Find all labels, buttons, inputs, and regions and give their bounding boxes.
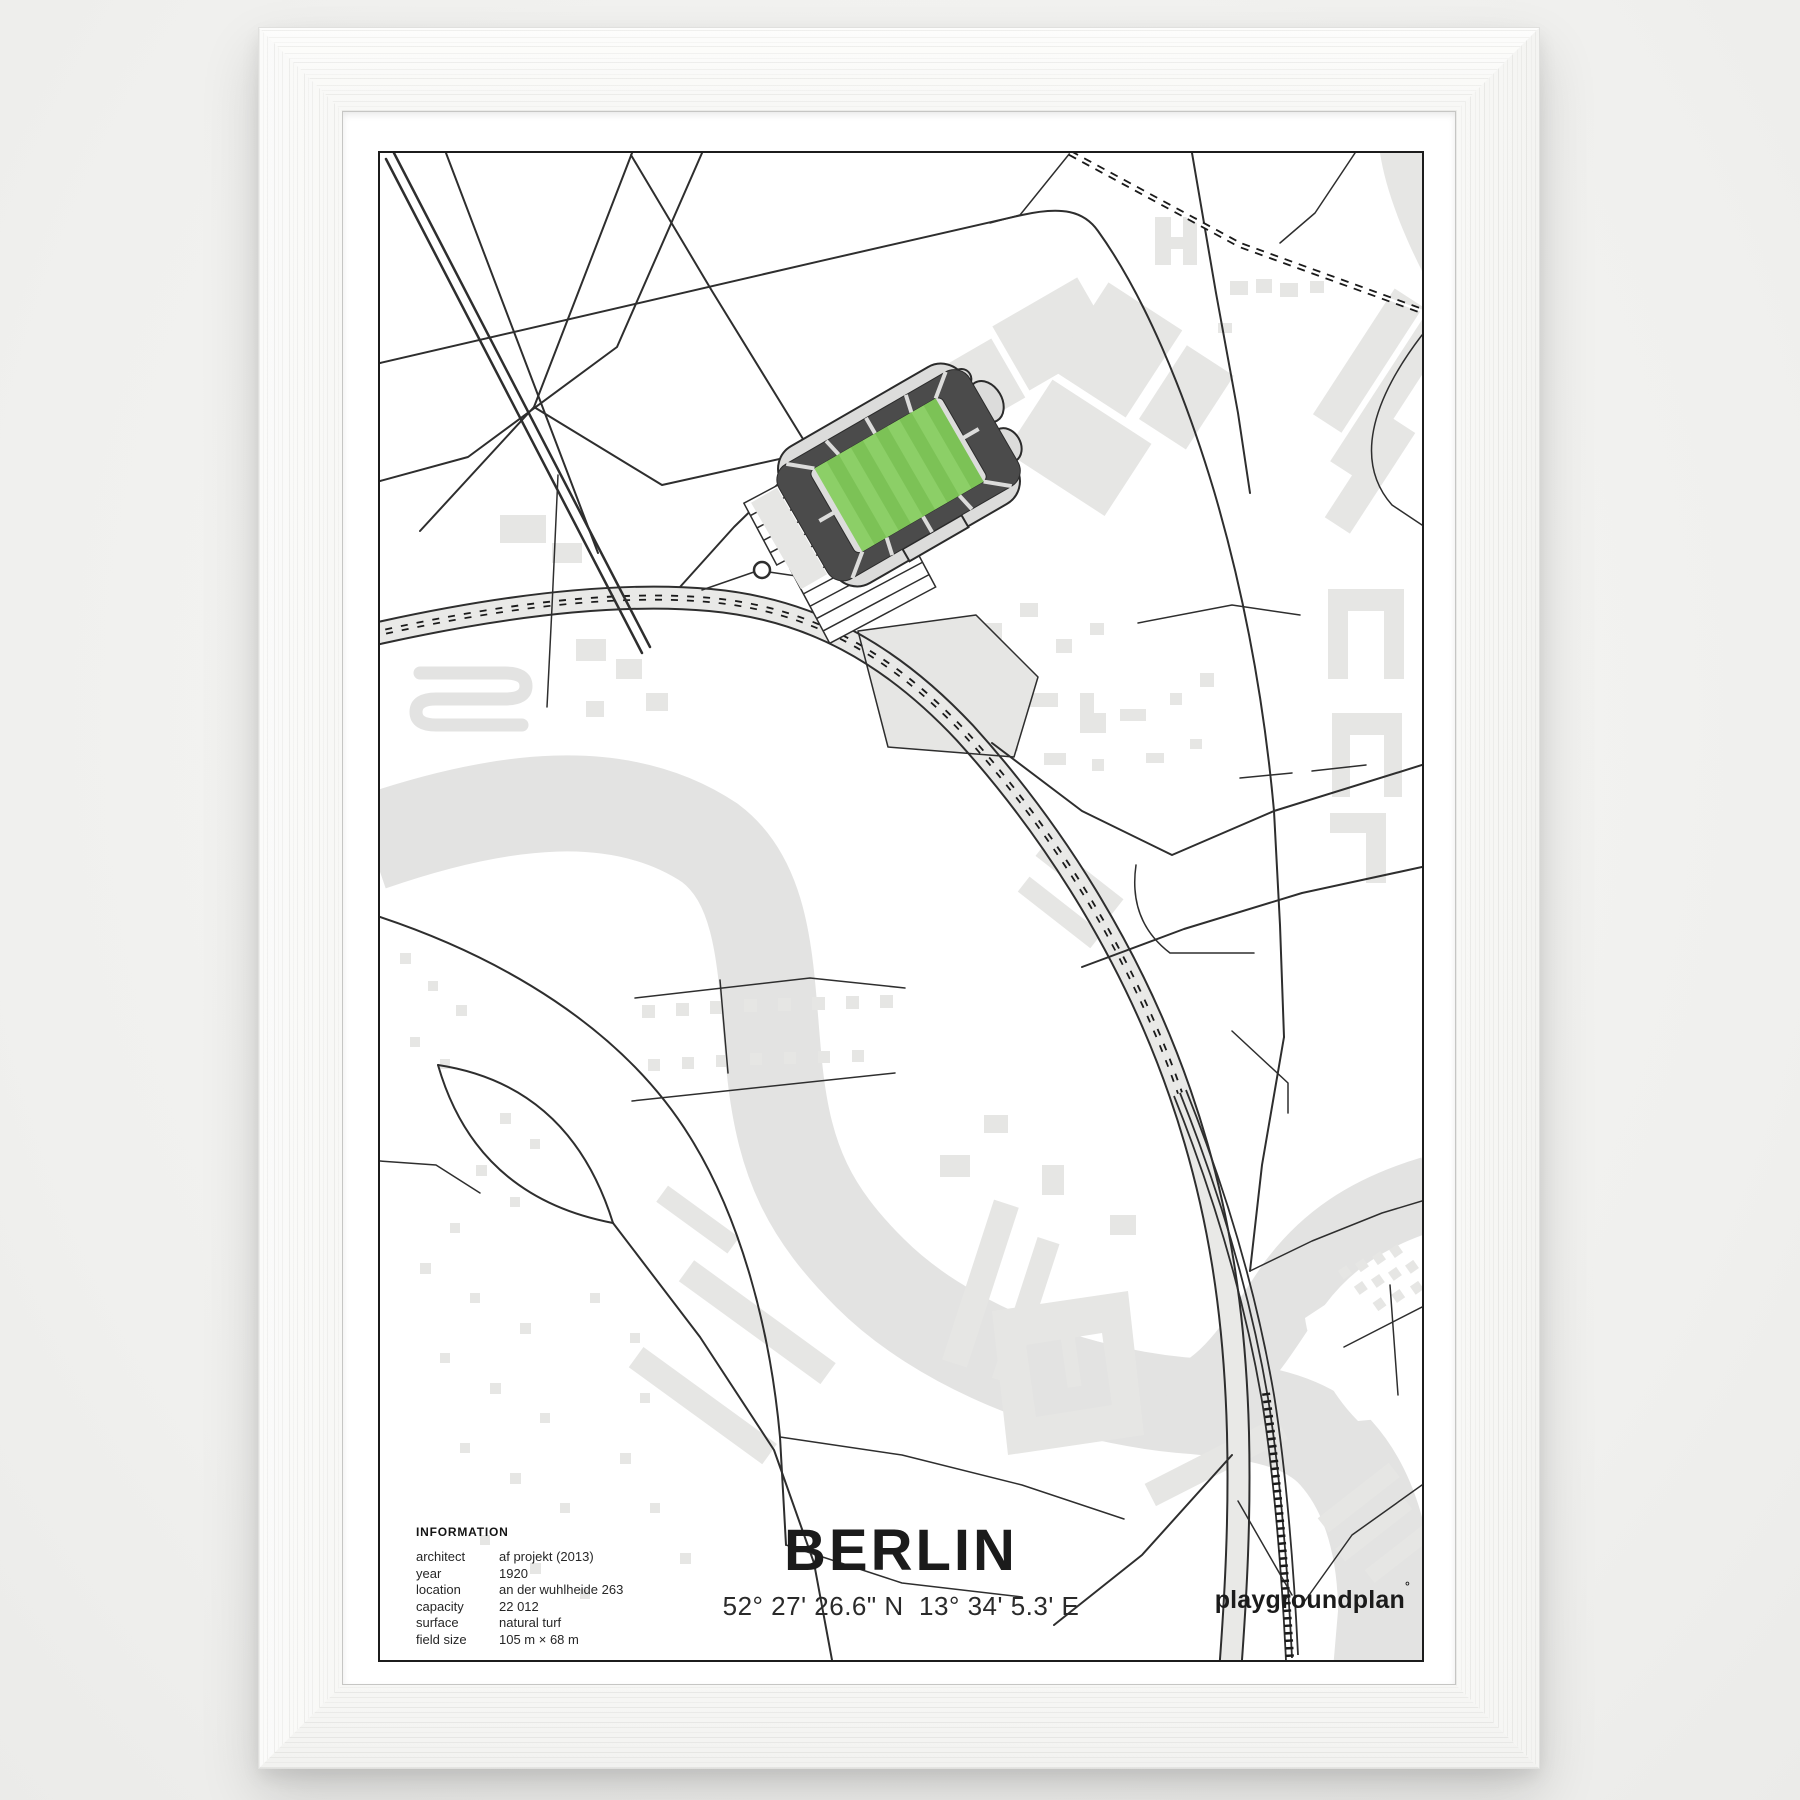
frame-left-molding: [259, 28, 342, 1768]
poster-title: BERLIN: [380, 1517, 1422, 1584]
frame-top-molding: [259, 28, 1539, 111]
information-row: field size105 m × 68 m: [416, 1632, 623, 1649]
information-value: 105 m × 68 m: [499, 1632, 623, 1649]
brand-logo: playgroundplan°: [1215, 1586, 1410, 1615]
park-path: [416, 673, 526, 725]
photo-backdrop: INFORMATION architectaf projekt (2013)ye…: [0, 0, 1800, 1800]
brand-name: playgroundplan: [1215, 1586, 1405, 1614]
frame-right-molding: [1456, 28, 1539, 1768]
information-label: field size: [416, 1632, 499, 1649]
city-map: [380, 153, 1422, 1660]
brand-mark: °: [1405, 1579, 1410, 1593]
frame-bottom-molding: [259, 1685, 1539, 1768]
roundabout: [754, 562, 770, 578]
poster-print: INFORMATION architectaf projekt (2013)ye…: [378, 151, 1424, 1662]
frame-mat: INFORMATION architectaf projekt (2013)ye…: [342, 111, 1456, 1685]
poster-frame: INFORMATION architectaf projekt (2013)ye…: [259, 28, 1539, 1768]
